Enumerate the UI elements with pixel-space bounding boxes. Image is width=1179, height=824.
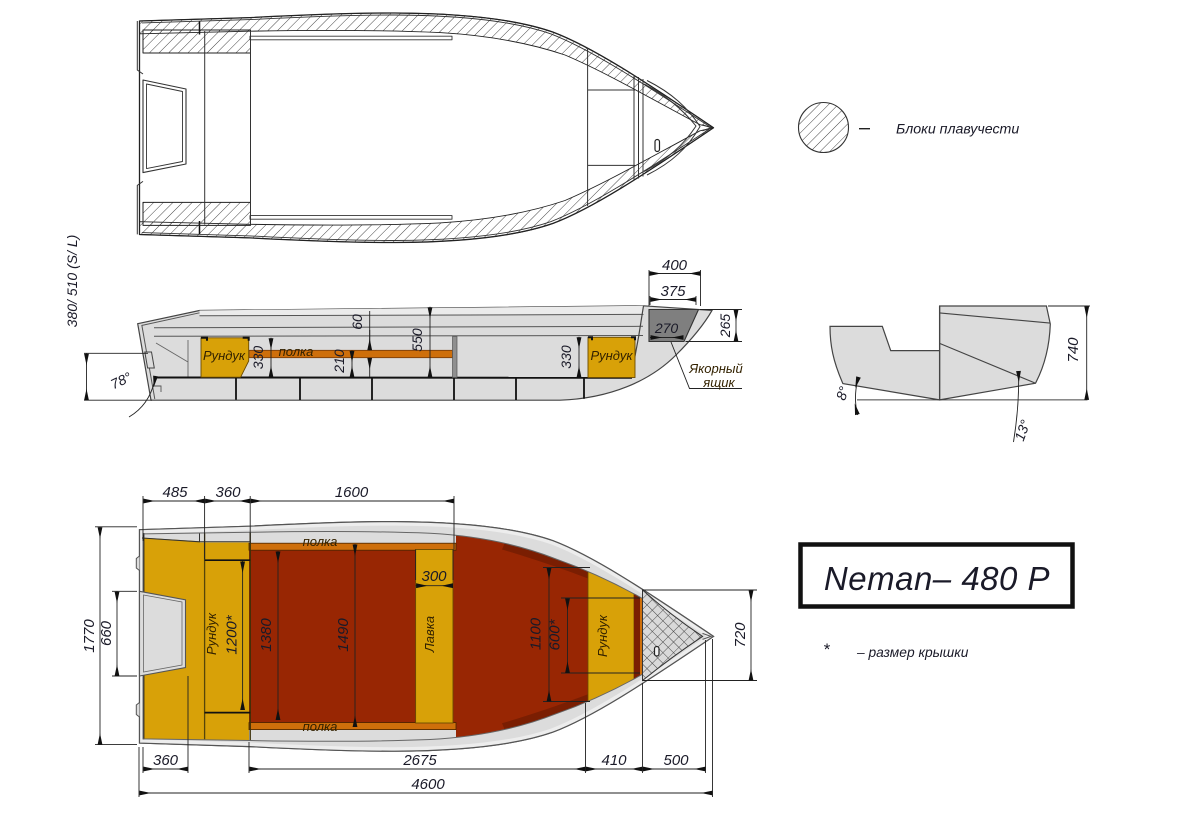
svg-text:8°: 8° (832, 384, 852, 402)
svg-text:360: 360 (153, 752, 179, 769)
svg-text:375: 375 (660, 283, 686, 300)
svg-text:740: 740 (1065, 337, 1082, 363)
svg-text:1100: 1100 (528, 617, 545, 650)
svg-text:1600: 1600 (335, 484, 369, 501)
svg-text:360: 360 (215, 484, 241, 501)
svg-text:210: 210 (331, 349, 347, 374)
svg-text:Якорный: Якорный (688, 361, 742, 376)
svg-text:1490: 1490 (335, 618, 352, 652)
svg-text:полка: полка (303, 534, 338, 549)
svg-text:60: 60 (349, 314, 365, 330)
svg-text:Блоки плавучести: Блоки плавучести (896, 122, 1019, 138)
svg-text:500: 500 (663, 752, 689, 769)
svg-text:4600: 4600 (411, 776, 445, 793)
svg-text:Рундук: Рундук (204, 612, 219, 655)
svg-text:Рундук: Рундук (595, 614, 610, 657)
svg-text:*: * (823, 640, 831, 659)
svg-text:полка: полка (303, 719, 338, 734)
svg-text:13°: 13° (1011, 417, 1033, 443)
svg-text:270: 270 (654, 320, 679, 336)
svg-text:380/ 510 (S/ L): 380/ 510 (S/ L) (64, 235, 80, 328)
svg-text:1770: 1770 (81, 619, 98, 653)
svg-text:330: 330 (558, 345, 574, 369)
svg-text:265: 265 (717, 314, 733, 339)
svg-text:78°: 78° (108, 369, 134, 393)
svg-text:Рундук: Рундук (590, 348, 633, 363)
svg-text:ящик: ящик (702, 375, 735, 390)
svg-text:720: 720 (732, 622, 749, 648)
svg-text:660: 660 (98, 620, 115, 646)
svg-text:485: 485 (162, 484, 188, 501)
svg-text:330: 330 (250, 346, 266, 370)
svg-text:полка: полка (279, 344, 314, 359)
svg-text:Рундук: Рундук (203, 348, 246, 363)
svg-text:600*: 600* (547, 618, 564, 650)
svg-text:400: 400 (662, 257, 688, 274)
svg-text:550: 550 (409, 328, 425, 352)
svg-text:1380: 1380 (258, 618, 275, 652)
svg-text:1200*: 1200* (224, 614, 241, 654)
svg-text:300: 300 (421, 568, 447, 585)
svg-text:410: 410 (601, 752, 627, 769)
svg-text:2675: 2675 (402, 752, 437, 769)
svg-text:Neman– 480 P: Neman– 480 P (824, 560, 1050, 597)
svg-text:– размер крышки: – размер крышки (856, 645, 969, 660)
svg-text:Лавка: Лавка (422, 616, 437, 653)
